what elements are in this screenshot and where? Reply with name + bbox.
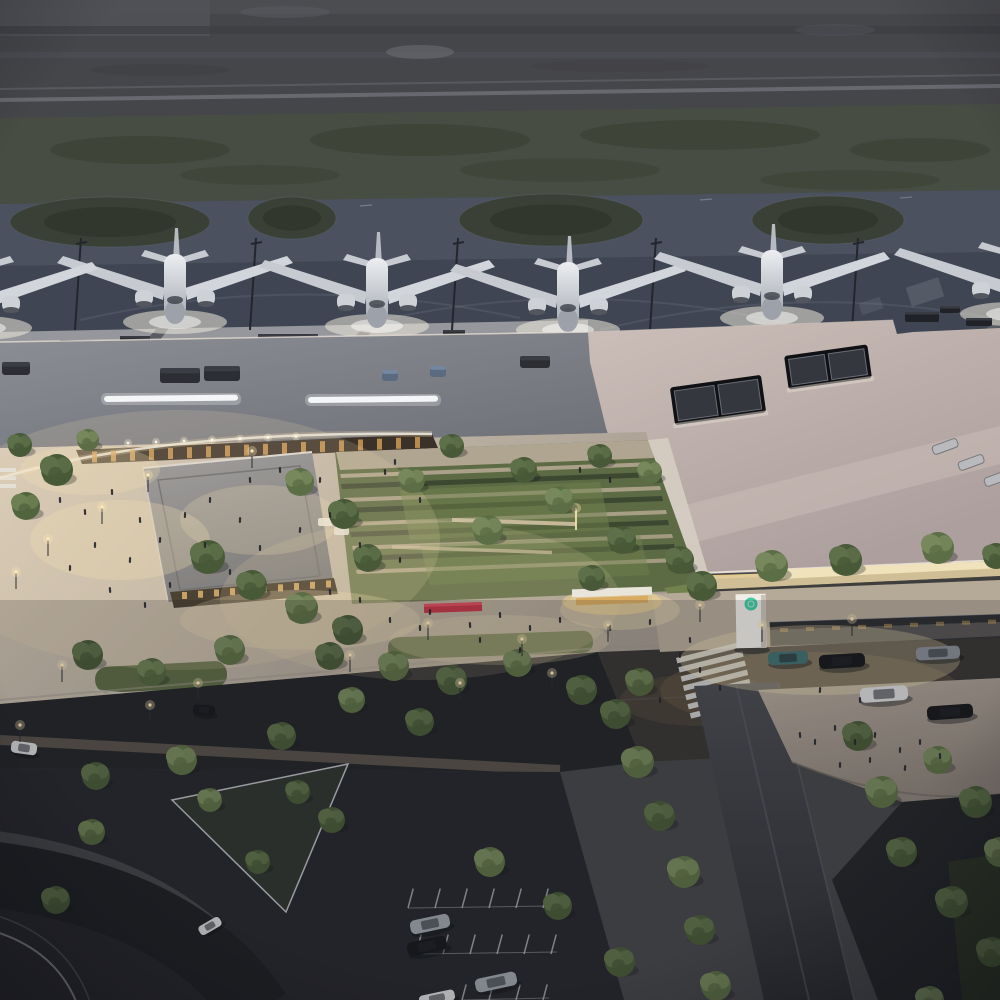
airport-aerial-rendering xyxy=(0,0,1000,1000)
vignette xyxy=(0,0,1000,1000)
scene-canvas xyxy=(0,0,1000,1000)
